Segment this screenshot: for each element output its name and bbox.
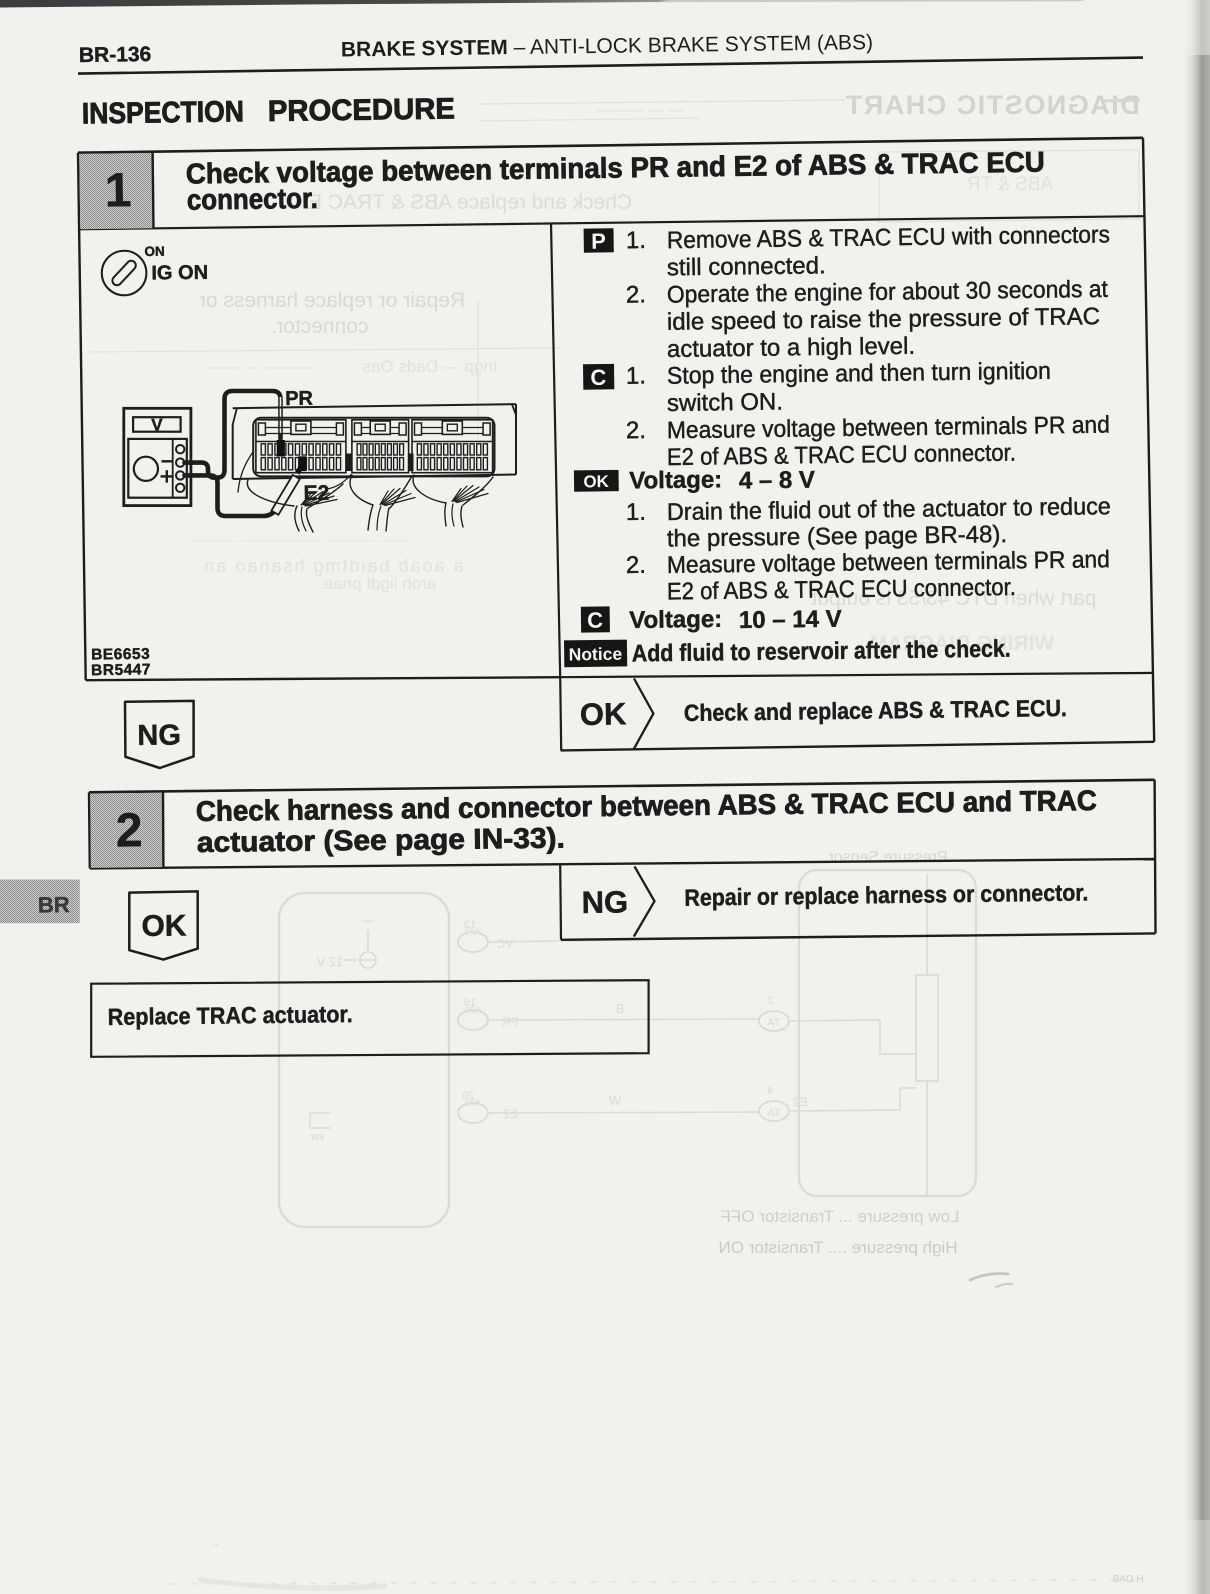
svg-text:aroh ligdt pnae: aroh ligdt pnae bbox=[324, 574, 436, 593]
svg-text:idle speed to raise the pressu: idle speed to raise the pressure of TRAC bbox=[667, 303, 1100, 336]
svg-text:H OAB: H OAB bbox=[1112, 1574, 1143, 1585]
svg-text:High pressure .... Transistor: High pressure .... Transistor ON bbox=[718, 1238, 957, 1257]
svg-text:OK: OK bbox=[583, 472, 609, 491]
svg-text:IG ON: IG ON bbox=[151, 262, 208, 285]
svg-text:Low pressure ... Transistor O: Low pressure ... Transistor OFF bbox=[720, 1207, 959, 1226]
svg-text:NG: NG bbox=[137, 719, 181, 752]
svg-text:E2 of ABS & TRAC ECU connector: E2 of ABS & TRAC ECU connector. bbox=[667, 574, 1016, 606]
svg-text:Measure voltage between termin: Measure voltage between terminals PR and bbox=[667, 412, 1110, 445]
svg-text:OK: OK bbox=[141, 909, 187, 943]
svg-text:2: 2 bbox=[115, 804, 142, 857]
svg-text:20: 20 bbox=[462, 1090, 474, 1102]
svg-text:Add fluid to reservoir after t: Add fluid to reservoir after the check. bbox=[632, 636, 1011, 668]
svg-text:PR: PR bbox=[501, 1015, 518, 1029]
svg-text:2.: 2. bbox=[626, 281, 646, 308]
svg-text:switch ON.: switch ON. bbox=[667, 388, 783, 417]
svg-text:2: 2 bbox=[767, 995, 773, 1007]
svg-text:C: C bbox=[590, 365, 606, 390]
svg-text:B: B bbox=[616, 1001, 625, 1016]
svg-text:Voltage:: Voltage: bbox=[629, 606, 722, 634]
svg-text:4 – 8 V: 4 – 8 V bbox=[739, 467, 815, 495]
svg-text:1: 1 bbox=[104, 164, 131, 217]
svg-text:a aoab baidtmg hsanao an: a aoab baidtmg hsanao an bbox=[202, 556, 463, 576]
svg-text:E2: E2 bbox=[502, 1107, 517, 1121]
svg-text:BR-136: BR-136 bbox=[79, 43, 152, 67]
svg-text:vw: vw bbox=[311, 1131, 325, 1143]
svg-text:E2: E2 bbox=[792, 1095, 807, 1109]
svg-text:Repair or replace harness or c: Repair or replace harness or connector. bbox=[684, 879, 1088, 910]
svg-text:—: — bbox=[362, 913, 374, 927]
svg-text:1.: 1. bbox=[626, 227, 646, 254]
svg-text:INSPECTION: INSPECTION bbox=[82, 95, 244, 130]
svg-text:— — ———: — — ——— bbox=[596, 102, 685, 119]
svg-text:Check and replace ABS & TRAC E: Check and replace ABS & TRAC ECU. bbox=[684, 695, 1067, 726]
svg-text:OK: OK bbox=[580, 696, 628, 732]
svg-text:Voltage:: Voltage: bbox=[629, 466, 722, 494]
svg-text:TA: TA bbox=[767, 1017, 781, 1029]
svg-text:V: V bbox=[151, 416, 163, 435]
svg-text:..: .. bbox=[212, 1534, 219, 1548]
svg-text:DIAGNOSTIC CHART: DIAGNOSTIC CHART bbox=[844, 90, 1140, 120]
svg-text:——— — ——: ——— — —— bbox=[208, 359, 313, 376]
svg-text:13: 13 bbox=[464, 919, 476, 931]
svg-text:4: 4 bbox=[767, 1085, 773, 1097]
svg-text:TA: TA bbox=[767, 1107, 781, 1119]
svg-text:2.: 2. bbox=[626, 552, 646, 579]
svg-text:2.: 2. bbox=[626, 417, 646, 444]
svg-text:—— ——— ————— ———: —— ——— ————— ——— bbox=[189, 532, 410, 549]
svg-text:connector.: connector. bbox=[272, 315, 369, 338]
svg-text:Ingp — Dads Oas: Ingp — Dads Oas bbox=[362, 357, 497, 376]
svg-text:Stop the engine and then turn: Stop the engine and then turn ignition bbox=[667, 358, 1051, 390]
svg-text:actuator (See page IN-33).: actuator (See page IN-33). bbox=[197, 823, 565, 859]
svg-text:1.: 1. bbox=[626, 362, 646, 389]
svg-text:16: 16 bbox=[464, 997, 476, 1009]
svg-text:P: P bbox=[591, 229, 606, 254]
svg-text:connector.: connector. bbox=[187, 183, 318, 217]
svg-text:Repair or replace harness or: Repair or replace harness or bbox=[199, 289, 465, 312]
svg-text:actuator to a high level.: actuator to a high level. bbox=[667, 333, 915, 363]
svg-text:BR5447: BR5447 bbox=[91, 661, 151, 679]
svg-text:PROCEDURE: PROCEDURE bbox=[268, 92, 455, 128]
svg-text:12 V: 12 V bbox=[316, 954, 343, 969]
svg-text:W: W bbox=[608, 1093, 621, 1108]
svg-text:10 – 14 V: 10 – 14 V bbox=[739, 606, 842, 634]
svg-text:Check and replace ABS & TRAC E: Check and replace ABS & TRAC E bbox=[308, 191, 632, 214]
svg-text:Notice: Notice bbox=[569, 644, 623, 665]
svg-text:Pressure Sensor: Pressure Sensor bbox=[828, 849, 948, 866]
svg-text:NG: NG bbox=[581, 884, 628, 920]
svg-text:PR: PR bbox=[285, 388, 314, 410]
svg-text:Replace TRAC actuator.: Replace TRAC actuator. bbox=[108, 1001, 353, 1030]
svg-text:BR: BR bbox=[38, 892, 70, 917]
svg-text:ON: ON bbox=[144, 244, 164, 259]
svg-text:still connected.: still connected. bbox=[667, 252, 826, 281]
svg-text:1.: 1. bbox=[626, 499, 646, 526]
svg-text:VC: VC bbox=[496, 937, 513, 951]
svg-text:C: C bbox=[587, 607, 603, 632]
